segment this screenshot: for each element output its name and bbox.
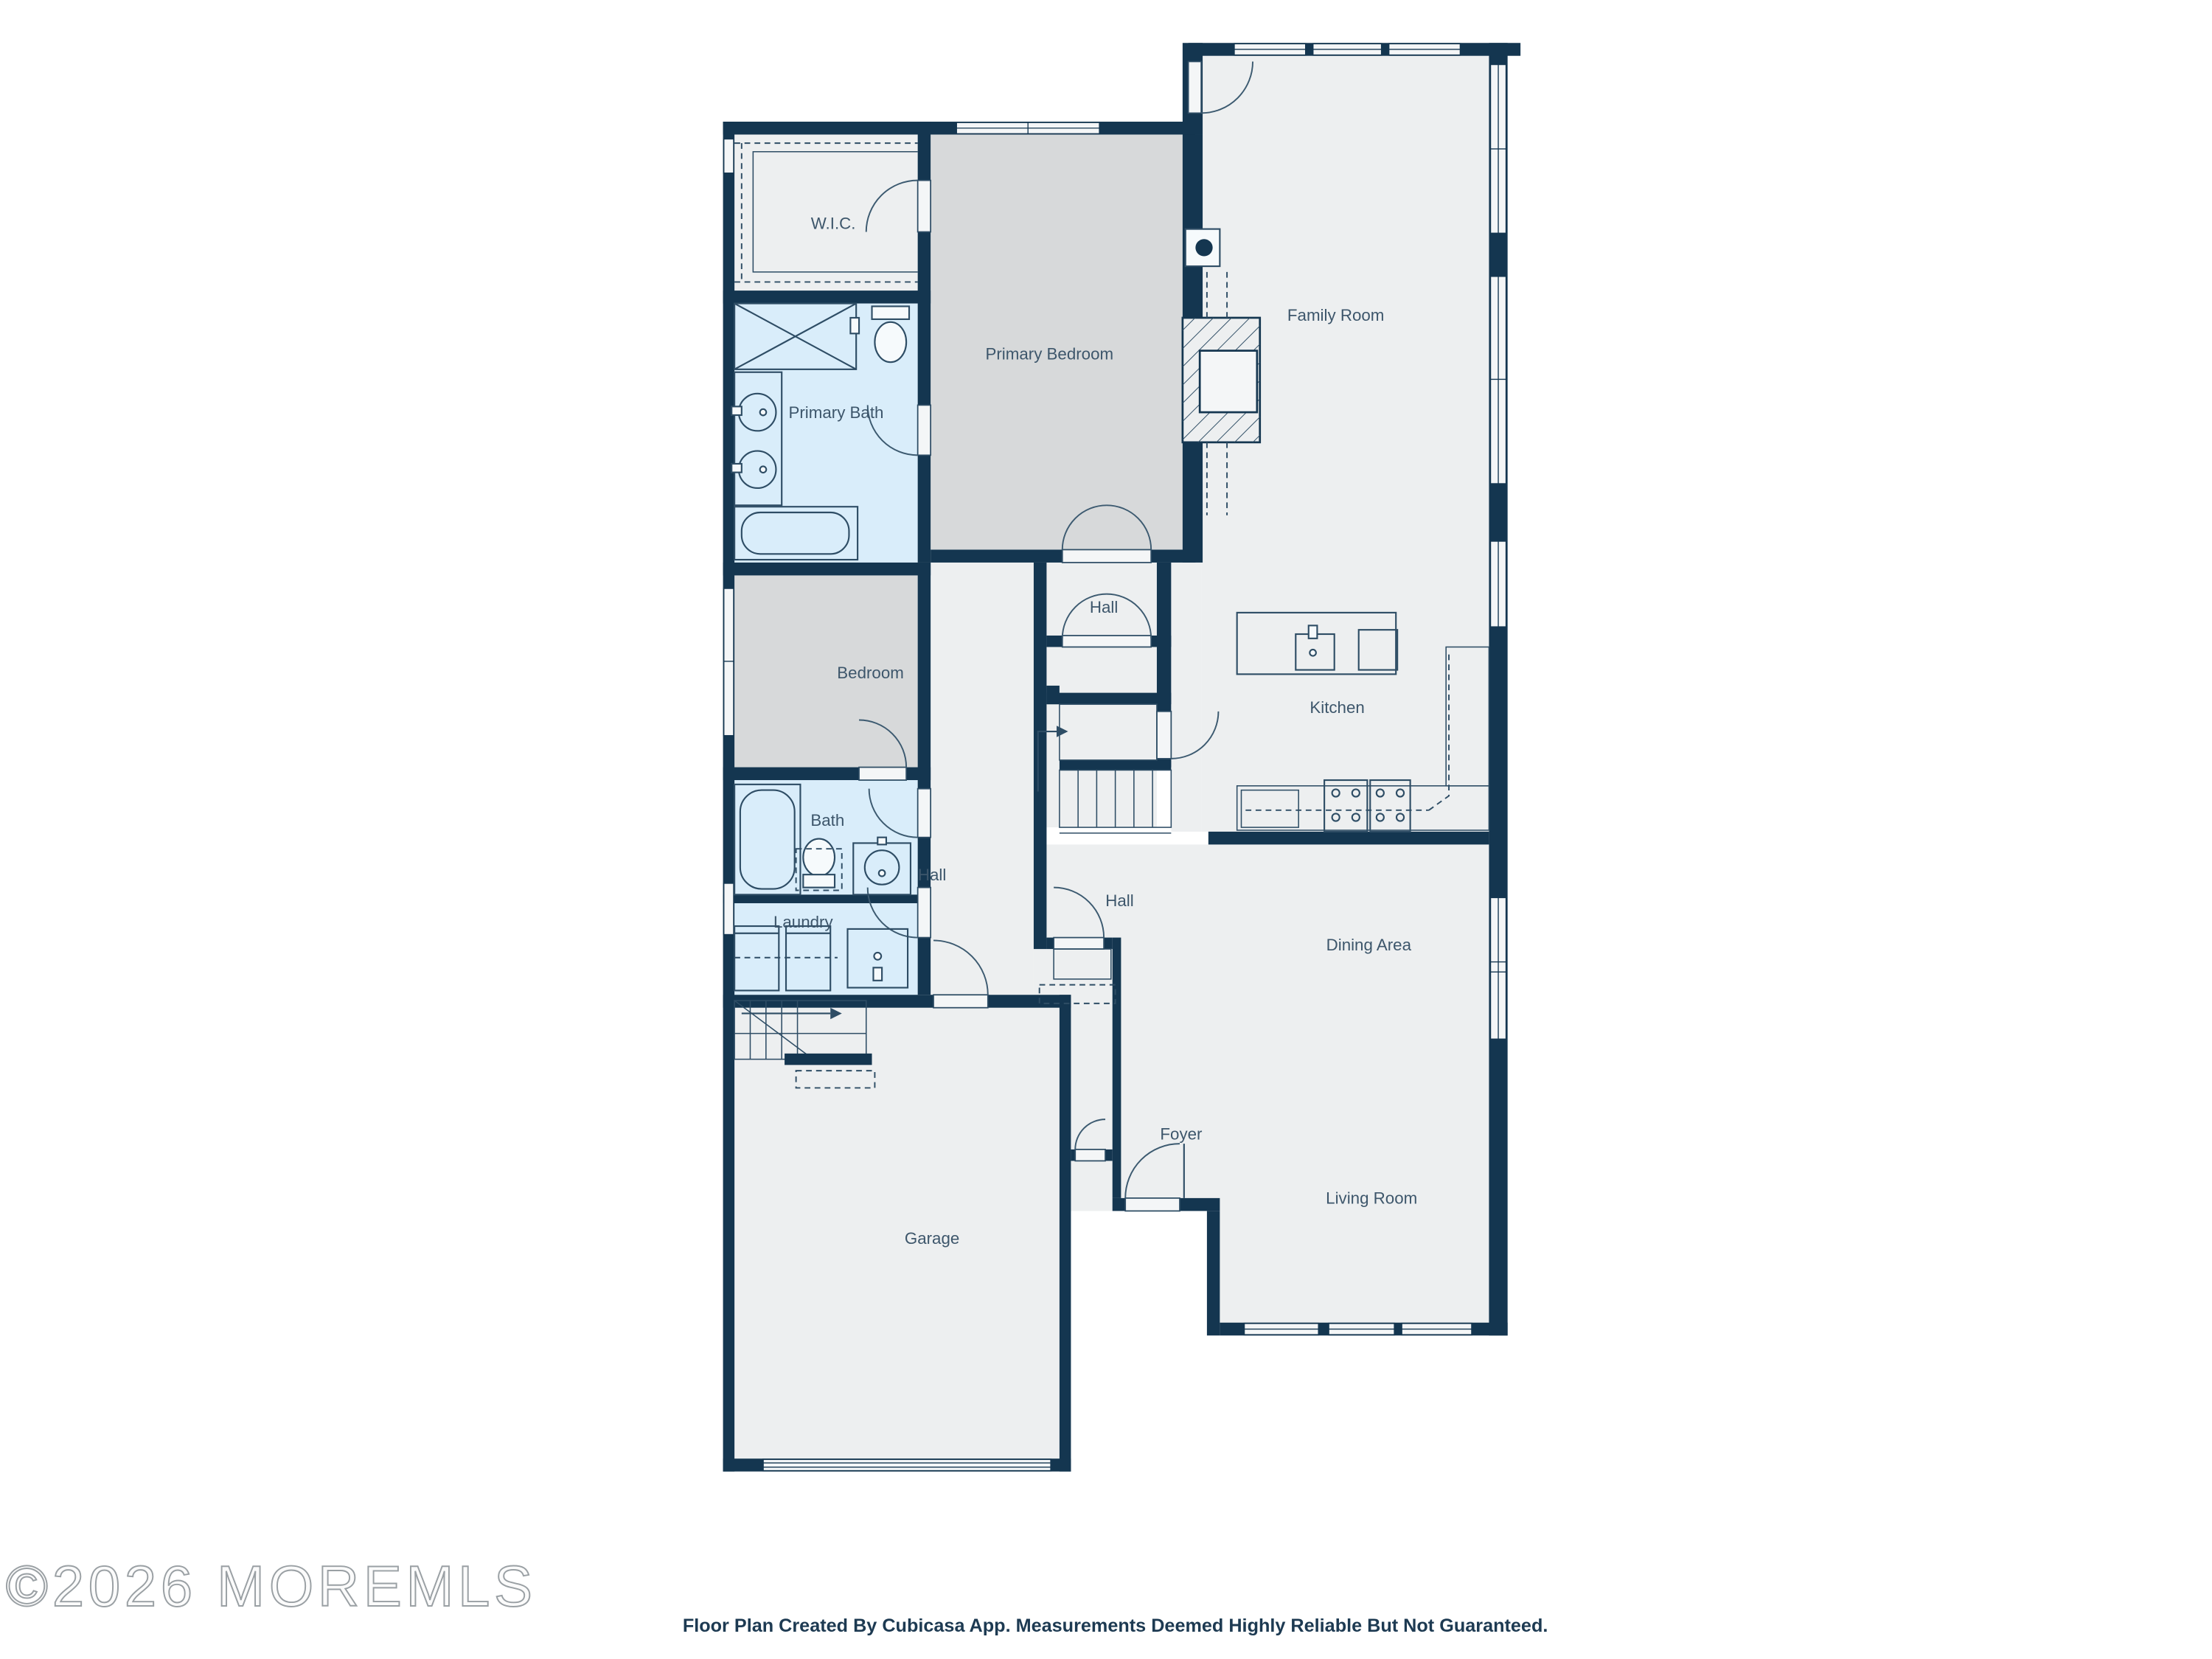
window xyxy=(1490,897,1506,1039)
window xyxy=(724,588,734,736)
room-label-wic: W.I.C. xyxy=(811,215,856,233)
room-label-hall-upper: Hall xyxy=(1090,598,1118,616)
room-label-kitchen: Kitchen xyxy=(1310,698,1364,717)
room-label-family-room: Family Room xyxy=(1287,306,1384,324)
window xyxy=(1234,44,1306,55)
dining-living-foyer-floor xyxy=(1034,844,1489,1322)
window xyxy=(1490,64,1506,233)
wic-floor xyxy=(734,134,918,291)
window xyxy=(1402,1324,1472,1335)
room-label-living-room: Living Room xyxy=(1326,1189,1417,1208)
window xyxy=(1490,541,1506,627)
garage-floor xyxy=(734,1008,1060,1459)
room-label-bath: Bath xyxy=(810,811,844,829)
room-label-laundry: Laundry xyxy=(773,913,833,931)
primary-bedroom-floor xyxy=(931,134,1183,549)
room-label-primary-bedroom: Primary Bedroom xyxy=(985,344,1113,363)
window xyxy=(724,883,734,935)
window xyxy=(1313,44,1382,55)
window xyxy=(1244,1324,1318,1335)
room-label-foyer: Foyer xyxy=(1160,1124,1203,1143)
floor-plan: W.I.C. Primary Bath Primary Bedroom Fami… xyxy=(0,0,2212,1659)
room-label-dining-area: Dining Area xyxy=(1326,936,1412,954)
window xyxy=(724,139,734,173)
hall-mid-floor xyxy=(931,563,1034,995)
kitchen-strip-floor xyxy=(1171,563,1201,832)
room-label-garage: Garage xyxy=(905,1229,959,1248)
footer-disclaimer: Floor Plan Created By Cubicasa App. Meas… xyxy=(683,1615,1548,1636)
window xyxy=(1329,1324,1394,1335)
toilet-icon xyxy=(872,306,909,362)
copyright-watermark: ©2026 MOREMLS xyxy=(6,1555,537,1618)
room-fills xyxy=(734,56,1489,1459)
garage-door xyxy=(763,1459,1051,1471)
window xyxy=(1388,44,1460,55)
window xyxy=(956,122,1099,134)
room-label-bedroom: Bedroom xyxy=(837,664,904,682)
wall-fixture-icon xyxy=(1186,229,1220,266)
room-label-hall-lower: Hall xyxy=(1105,891,1133,910)
window xyxy=(1490,276,1506,484)
room-label-primary-bath: Primary Bath xyxy=(788,403,883,422)
room-label-hall-mid: Hall xyxy=(918,866,946,884)
